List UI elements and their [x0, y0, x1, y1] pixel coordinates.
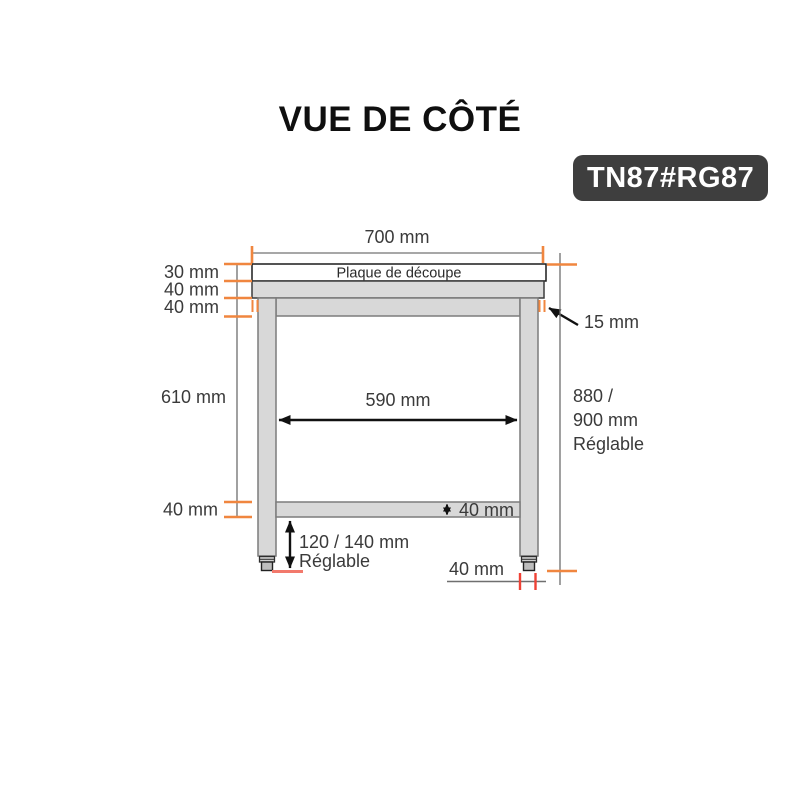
dim-overall-height-label-3: Réglable [573, 434, 644, 454]
apron [276, 298, 520, 316]
dim-foot-height-label-1: 120 / 140 mm [299, 532, 409, 552]
table-structure: Plaque de découpe [252, 264, 546, 571]
dim-foot-width-label: 40 mm [449, 559, 504, 579]
right-foot [522, 557, 537, 571]
dim-foot-height: 120 / 140 mm Réglable [272, 521, 409, 572]
dim-top-overhang-label: 15 mm [584, 312, 639, 332]
cutting-plate-label: Plaque de découpe [337, 266, 462, 282]
dim-apron-thickness-label: 40 mm [164, 297, 219, 317]
top-frame [252, 281, 544, 298]
dim-shelf-thickness-side-label: 40 mm [163, 500, 218, 520]
dim-inner-width-label: 590 mm [365, 390, 430, 410]
page: VUE DE CÔTÉ TN87#RG87 Plaque de découpe [0, 0, 800, 800]
dim-shelf-thickness-label: 40 mm [459, 500, 514, 520]
dim-overall-height: 880 / 900 mm Réglable [547, 253, 644, 585]
left-leg [258, 298, 276, 556]
dim-left-column: 30 mm 40 mm 40 mm 610 mm 40 mm [161, 262, 252, 520]
dim-top-width: 700 mm [252, 227, 543, 263]
dim-top-width-label: 700 mm [364, 227, 429, 247]
dim-overall-height-label-1: 880 / [573, 386, 613, 406]
dim-inner-width: 590 mm [279, 390, 517, 420]
overhang-arrow [549, 308, 578, 325]
right-leg [520, 298, 538, 556]
left-foot [260, 557, 275, 571]
dim-foot-height-label-2: Réglable [299, 551, 370, 571]
dim-leg-clearance-label: 610 mm [161, 387, 226, 407]
dim-overall-height-label-2: 900 mm [573, 410, 638, 430]
side-view-diagram: Plaque de découpe 700 mm [0, 0, 800, 800]
